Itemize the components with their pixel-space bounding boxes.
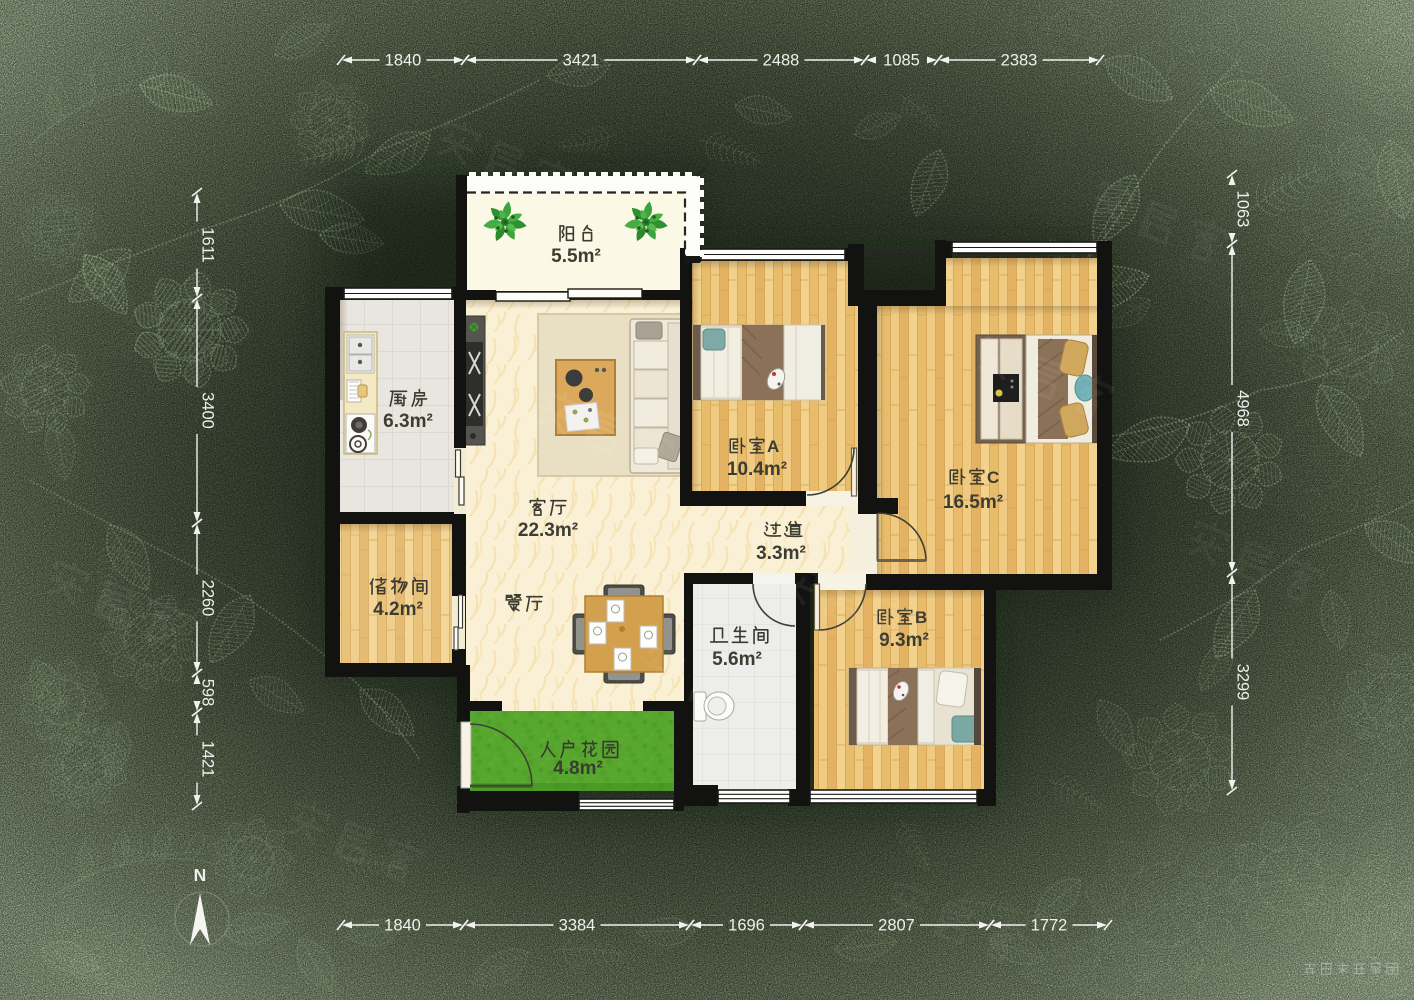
svg-text:1085: 1085 (883, 52, 920, 70)
svg-text:10.4m²: 10.4m² (727, 459, 787, 480)
svg-text:5.6m²: 5.6m² (712, 649, 762, 670)
svg-text:16.5m²: 16.5m² (943, 492, 1003, 513)
svg-text:1063: 1063 (1234, 191, 1252, 228)
svg-text:6.3m²: 6.3m² (383, 411, 433, 432)
svg-text:1772: 1772 (1031, 917, 1068, 935)
svg-text:1421: 1421 (199, 741, 217, 778)
svg-text:2260: 2260 (199, 580, 217, 617)
svg-text:4.8m²: 4.8m² (553, 758, 603, 779)
svg-text:3421: 3421 (563, 52, 600, 70)
svg-text:3384: 3384 (559, 917, 596, 935)
svg-text:N: N (194, 865, 207, 885)
svg-text:2488: 2488 (763, 52, 800, 70)
svg-text:A: A (767, 437, 779, 456)
svg-text:4.2m²: 4.2m² (373, 599, 423, 620)
svg-text:1611: 1611 (199, 227, 217, 262)
svg-text:1696: 1696 (728, 917, 765, 935)
svg-text:3.3m²: 3.3m² (756, 543, 806, 564)
svg-text:C: C (987, 468, 999, 487)
svg-text:4968: 4968 (1234, 390, 1252, 427)
svg-text:1840: 1840 (384, 917, 421, 935)
svg-text:3400: 3400 (199, 392, 217, 429)
svg-text:598: 598 (199, 679, 217, 707)
svg-text:2383: 2383 (1001, 52, 1038, 70)
svg-text:1840: 1840 (385, 52, 422, 70)
svg-text:B: B (915, 608, 927, 627)
svg-text:5.5m²: 5.5m² (551, 246, 601, 267)
svg-text:3299: 3299 (1234, 664, 1252, 701)
svg-text:22.3m²: 22.3m² (518, 520, 578, 541)
